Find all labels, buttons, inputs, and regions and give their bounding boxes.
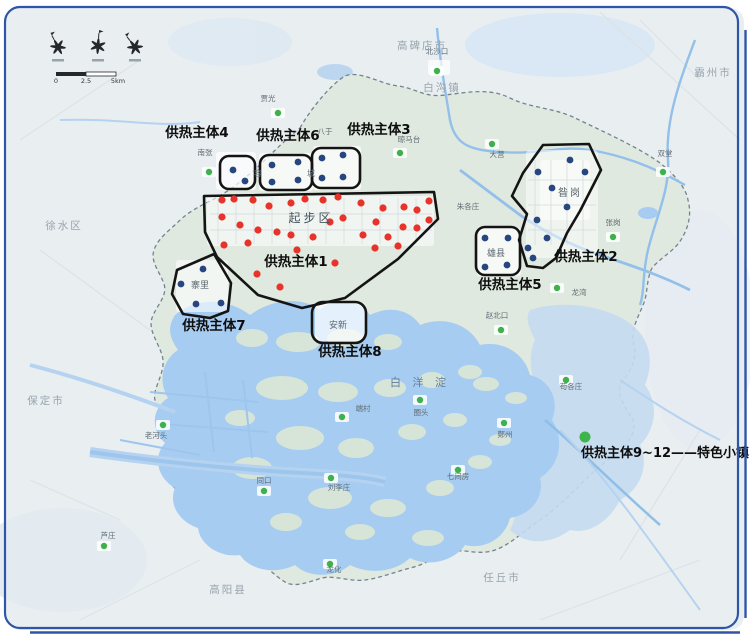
village-label: 七间房 — [447, 471, 470, 481]
blue-heat-source-dot — [525, 245, 532, 252]
scale-label-mid: 2.5 — [81, 77, 91, 85]
blue-heat-source-dot — [340, 152, 347, 159]
blue-heat-source-dot — [482, 235, 489, 242]
supply-zone-label: 供热主体2 — [553, 248, 617, 265]
red-heat-source-dot — [230, 195, 237, 202]
blue-heat-source-dot — [549, 185, 556, 192]
region-label: 高碑店市 — [397, 39, 447, 52]
village-dot — [397, 150, 403, 156]
red-heat-source-dot — [287, 231, 294, 238]
blue-heat-source-dot — [230, 167, 237, 174]
blue-heat-source-dot — [482, 264, 489, 271]
supply-zone-label: 供热主体6 — [255, 127, 319, 144]
place-label: 城 — [307, 169, 315, 178]
village-dot — [610, 234, 616, 240]
region-label: 霸州市 — [694, 66, 732, 79]
blue-heat-source-dot — [242, 178, 249, 185]
red-heat-source-dot — [357, 199, 364, 206]
blue-heat-source-dot — [504, 262, 511, 269]
village-dot — [434, 68, 440, 74]
village-dot — [206, 169, 212, 175]
red-heat-source-dot — [265, 202, 272, 209]
red-heat-source-dot — [218, 213, 225, 220]
village-label: 老河头 — [145, 430, 168, 440]
blue-heat-source-dot — [319, 155, 326, 162]
blue-heat-source-dot — [200, 266, 207, 273]
red-heat-source-dot — [276, 283, 283, 290]
red-heat-source-dot — [379, 204, 386, 211]
blue-heat-source-dot — [505, 235, 512, 242]
village-label: 鄚州 — [498, 429, 513, 439]
red-heat-source-dot — [253, 270, 260, 277]
region-label: 高阳县 — [209, 583, 247, 596]
village-label: 双堂 — [658, 148, 673, 158]
village-label: 张岗 — [606, 218, 621, 227]
scale-label-0: 0 — [54, 77, 58, 85]
red-heat-source-dot — [384, 233, 391, 240]
red-heat-source-dot — [287, 199, 294, 206]
red-heat-source-dot — [413, 206, 420, 213]
supply-zone-label: 供热主体3 — [346, 121, 410, 138]
region-label: 白沟镇 — [423, 81, 461, 94]
village-dot — [554, 285, 560, 291]
red-heat-source-dot — [372, 218, 379, 225]
village-dot — [498, 327, 504, 333]
place-label: 容 — [254, 168, 262, 178]
village-label: 端村 — [356, 403, 371, 413]
blue-heat-source-dot — [544, 235, 551, 242]
village-label: 圈头 — [414, 407, 429, 417]
supply-zone-label: 供热主体7 — [181, 317, 245, 334]
red-heat-source-dot — [425, 216, 432, 223]
blue-heat-source-dot — [295, 177, 302, 184]
scale-label-end: 5km — [111, 77, 125, 85]
place-label: 白 洋 淀 — [390, 375, 450, 389]
blue-heat-source-dot — [340, 174, 347, 181]
xiongan-heating-map: 贾光北沙口八于晾马台南张大营双堂张岗朱各庄龙湾赵北口苟各庄鄚州圈头端村七间房老河… — [0, 0, 750, 638]
blue-heat-source-dot — [218, 300, 225, 307]
village-dot — [261, 488, 267, 494]
region-label: 徐水区 — [45, 219, 83, 232]
village-dot — [101, 543, 107, 549]
red-heat-source-dot — [339, 214, 346, 221]
blue-heat-source-dot — [193, 301, 200, 308]
region-label: 保定市 — [27, 394, 65, 407]
village-label: 赵北口 — [486, 310, 509, 320]
red-heat-source-dot — [334, 193, 341, 200]
blue-heat-source-dot — [530, 255, 537, 262]
red-heat-source-dot — [319, 196, 326, 203]
red-heat-source-dot — [331, 259, 338, 266]
red-heat-source-dot — [359, 231, 366, 238]
village-label: 贾光 — [261, 93, 276, 103]
village-label: 八于 — [318, 127, 333, 136]
red-heat-source-dot — [273, 228, 280, 235]
village-label: 南张 — [198, 147, 213, 157]
village-label: 同口 — [257, 476, 272, 485]
red-heat-source-dot — [309, 233, 316, 240]
blue-heat-source-dot — [269, 162, 276, 169]
place-label: 起步区 — [288, 211, 333, 225]
red-heat-source-dot — [413, 224, 420, 231]
supply-zone-label: 供热主体4 — [164, 124, 228, 141]
village-dot — [328, 475, 334, 481]
red-heat-source-dot — [301, 195, 308, 202]
blue-heat-source-dot — [567, 157, 574, 164]
village-label: 朱各庄 — [457, 201, 480, 211]
blue-heat-source-dot — [534, 217, 541, 224]
red-heat-source-dot — [236, 221, 243, 228]
blue-heat-source-dot — [319, 175, 326, 182]
supply-zone-label: 供热主体5 — [477, 276, 541, 293]
village-dot — [160, 422, 166, 428]
red-heat-source-dot — [293, 246, 300, 253]
blue-heat-source-dot — [178, 281, 185, 288]
supply-zone-label: 供热主体8 — [317, 343, 381, 360]
village-label: 大营 — [490, 149, 505, 159]
blue-heat-source-dot — [269, 179, 276, 186]
red-heat-source-dot — [400, 203, 407, 210]
village-dot — [417, 397, 423, 403]
village-dot — [339, 414, 345, 420]
village-dot — [501, 420, 507, 426]
blue-heat-source-dot — [295, 159, 302, 166]
village-label: 芦庄 — [101, 530, 116, 540]
supply-zone-label: 供热主体1 — [263, 253, 327, 270]
village-label: 刘李庄 — [328, 482, 351, 492]
red-heat-source-dot — [244, 239, 251, 246]
blue-heat-source-dot — [582, 169, 589, 176]
place-label: 寨里 — [191, 279, 209, 291]
blue-heat-source-dot — [564, 204, 571, 211]
red-heat-source-dot — [371, 244, 378, 251]
legend-text: 供热主体9~12——特色小镇 — [580, 445, 749, 461]
region-label: 任丘市 — [483, 571, 521, 584]
village-label: 龙化 — [327, 564, 342, 574]
legend-town-dot — [580, 432, 591, 443]
village-label: 苟各庄 — [560, 381, 583, 391]
village-dot — [489, 141, 495, 147]
red-heat-source-dot — [254, 226, 261, 233]
map-page: 贾光北沙口八于晾马台南张大营双堂张岗朱各庄龙湾赵北口苟各庄鄚州圈头端村七间房老河… — [0, 0, 750, 638]
place-label: 昝岗 — [558, 186, 582, 199]
village-label: 龙湾 — [572, 287, 587, 297]
blue-heat-source-dot — [535, 169, 542, 176]
village-dot — [660, 169, 666, 175]
place-label: 雄县 — [487, 247, 505, 259]
red-heat-source-dot — [394, 242, 401, 249]
red-heat-source-dot — [399, 223, 406, 230]
red-heat-source-dot — [425, 197, 432, 204]
red-heat-source-dot — [218, 196, 225, 203]
red-heat-source-dot — [220, 241, 227, 248]
place-label: 安新 — [329, 319, 347, 331]
village-dot — [275, 110, 281, 116]
red-heat-source-dot — [249, 196, 256, 203]
